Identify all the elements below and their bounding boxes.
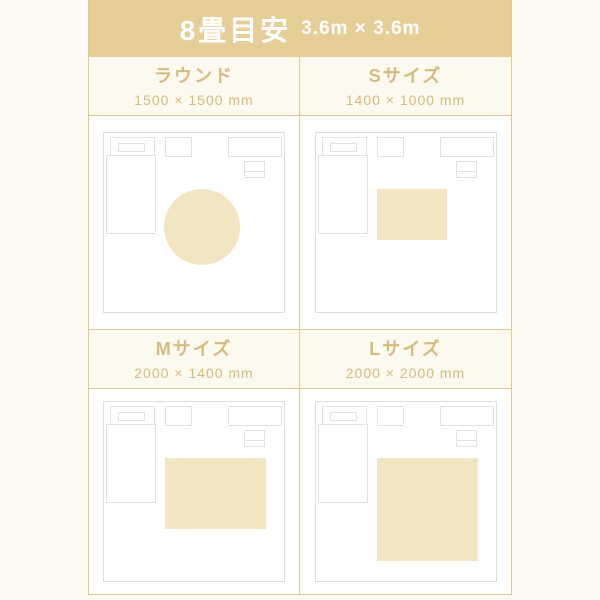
chair	[244, 161, 265, 178]
bed	[106, 424, 156, 503]
size-guide-panel: 8畳目安 3.6m × 3.6m ラウンド 1500 × 1500 mm	[88, 0, 512, 595]
room-diagram	[89, 389, 299, 594]
room-diagram	[300, 116, 511, 329]
size-name: ラウンド	[89, 66, 299, 88]
room-outline	[103, 132, 285, 313]
chair	[456, 430, 477, 447]
room-size-title: 8畳目安	[180, 9, 292, 49]
size-panel-round: ラウンド 1500 × 1500 mm	[89, 57, 300, 330]
size-panel-m: Mサイズ 2000 × 1400 mm	[89, 330, 300, 594]
rug-m-size	[165, 458, 266, 529]
panel-header-l: Lサイズ 2000 × 2000 mm	[300, 330, 511, 389]
dresser	[377, 406, 404, 426]
chair-detail-line	[457, 171, 476, 172]
size-grid: ラウンド 1500 × 1500 mm Sサイズ	[89, 57, 511, 594]
bed-pillow	[118, 143, 145, 152]
room-diagram	[89, 116, 299, 329]
chair-detail-line	[457, 440, 476, 441]
room-outline	[315, 401, 497, 582]
desk	[228, 137, 282, 157]
chair	[456, 161, 477, 178]
size-name: Mサイズ	[89, 339, 299, 361]
panel-header-m: Mサイズ 2000 × 1400 mm	[89, 330, 299, 389]
size-name: Sサイズ	[300, 66, 511, 88]
bed-pillow	[330, 143, 357, 152]
dresser	[377, 137, 404, 157]
room-dimensions: 3.6m × 3.6m	[301, 18, 420, 40]
desk	[440, 137, 494, 157]
room-diagram	[300, 389, 511, 594]
panel-header-s: Sサイズ 1400 × 1000 mm	[300, 57, 511, 116]
size-panel-s: Sサイズ 1400 × 1000 mm	[300, 57, 511, 330]
size-dimensions: 1500 × 1500 mm	[89, 92, 299, 108]
chair-detail-line	[245, 171, 264, 172]
title-banner: 8畳目安 3.6m × 3.6m	[89, 0, 511, 57]
size-name: Lサイズ	[300, 339, 511, 361]
desk	[440, 406, 494, 426]
room-outline	[103, 401, 285, 582]
size-dimensions: 1400 × 1000 mm	[300, 92, 511, 108]
chair	[244, 430, 265, 447]
rug-round	[164, 189, 240, 265]
size-dimensions: 2000 × 1400 mm	[89, 365, 299, 381]
bed	[318, 424, 368, 503]
size-dimensions: 2000 × 2000 mm	[300, 365, 511, 381]
size-panel-l: Lサイズ 2000 × 2000 mm	[300, 330, 511, 594]
bed-pillow	[330, 412, 357, 421]
bed	[318, 155, 368, 234]
dresser	[165, 137, 192, 157]
bed-pillow	[118, 412, 145, 421]
dresser	[165, 406, 192, 426]
rug-s-size	[377, 189, 447, 240]
desk	[228, 406, 282, 426]
panel-header-round: ラウンド 1500 × 1500 mm	[89, 57, 299, 116]
chair-detail-line	[245, 440, 264, 441]
rug-l-size	[377, 458, 478, 561]
room-outline	[315, 132, 497, 313]
bed	[106, 155, 156, 234]
